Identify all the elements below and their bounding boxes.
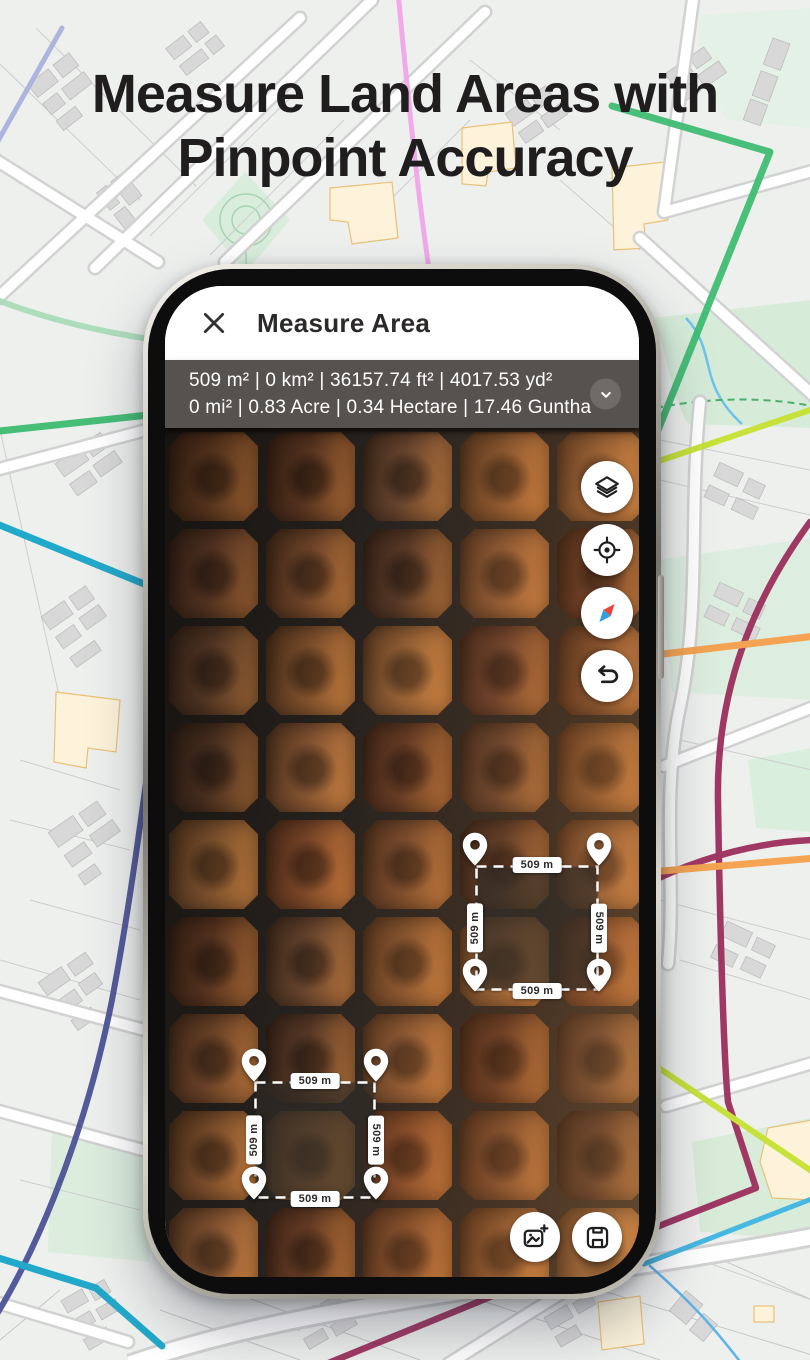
area-pin[interactable] [241, 1166, 267, 1200]
measurement-line-2: 0 mi² | 0.83 Acre | 0.34 Hectare | 17.46… [189, 394, 639, 421]
side-length-label: 509 m [368, 1116, 384, 1165]
city-block [169, 529, 258, 618]
area-pin[interactable] [241, 1048, 267, 1082]
chevron-down-icon [597, 385, 615, 403]
city-block [363, 626, 452, 715]
hero-title-line1: Measure Land Areas with [0, 62, 810, 126]
close-icon [201, 310, 227, 336]
layers-button[interactable] [581, 461, 633, 513]
city-block [460, 1111, 549, 1200]
city-block [169, 917, 258, 1006]
my-location-button[interactable] [581, 524, 633, 576]
measured-area-1: 509 m 509 m 509 m 509 m [475, 865, 599, 991]
city-block [363, 723, 452, 812]
city-block [363, 820, 452, 909]
city-block [169, 626, 258, 715]
city-block [266, 917, 355, 1006]
city-block [460, 1014, 549, 1103]
phone-mockup: Measure Area 509 m² | 0 km² | 36157.74 f… [143, 264, 661, 1299]
city-block [460, 432, 549, 521]
phone-frame: Measure Area 509 m² | 0 km² | 36157.74 f… [148, 269, 656, 1294]
action-buttons [510, 1212, 622, 1262]
area-pin[interactable] [462, 832, 488, 866]
city-block [169, 432, 258, 521]
city-block [266, 1208, 355, 1277]
city-block [557, 1014, 639, 1103]
area-pin[interactable] [363, 1048, 389, 1082]
city-block [363, 1208, 452, 1277]
city-block [266, 820, 355, 909]
city-block [169, 1208, 258, 1277]
undo-button[interactable] [581, 650, 633, 702]
map-controls [581, 461, 633, 702]
close-button[interactable] [199, 308, 229, 338]
side-length-label: 509 m [513, 857, 562, 873]
side-length-label: 509 m [291, 1191, 340, 1207]
city-block [363, 529, 452, 618]
phone-screen: Measure Area 509 m² | 0 km² | 36157.74 f… [165, 286, 639, 1277]
area-pin[interactable] [363, 1166, 389, 1200]
area-pin[interactable] [586, 958, 612, 992]
hero-title-line2: Pinpoint Accuracy [0, 126, 810, 190]
add-screenshot-button[interactable] [510, 1212, 560, 1262]
area-pin[interactable] [462, 958, 488, 992]
add-screenshot-icon [522, 1224, 549, 1251]
city-block [460, 723, 549, 812]
city-block [169, 723, 258, 812]
side-length-label: 509 m [591, 904, 607, 953]
measure-boundary [475, 865, 599, 991]
expand-measurements-button[interactable] [590, 379, 621, 410]
city-block [363, 432, 452, 521]
save-button[interactable] [572, 1212, 622, 1262]
city-block [169, 820, 258, 909]
measurement-bar: 509 m² | 0 km² | 36157.74 ft² | 4017.53 … [165, 360, 639, 428]
side-length-label: 509 m [467, 904, 483, 953]
compass-icon [592, 598, 622, 628]
satellite-map[interactable]: 509 m 509 m 509 m 509 m 509 m 509 m [165, 428, 639, 1277]
city-block [557, 1111, 639, 1200]
side-length-label: 509 m [513, 983, 562, 999]
compass-button[interactable] [581, 587, 633, 639]
side-length-label: 509 m [291, 1073, 340, 1089]
layers-icon [593, 473, 621, 501]
city-block [266, 432, 355, 521]
my-location-icon [593, 536, 621, 564]
page-title: Measure Area [257, 308, 430, 339]
city-block [266, 626, 355, 715]
city-block [363, 917, 452, 1006]
measured-area-2: 509 m 509 m 509 m 509 m [254, 1081, 376, 1199]
hero-title: Measure Land Areas with Pinpoint Accurac… [0, 62, 810, 190]
app-header: Measure Area [165, 286, 639, 360]
area-pin[interactable] [586, 832, 612, 866]
phone-power-button [658, 575, 664, 679]
city-block [460, 529, 549, 618]
city-block [266, 529, 355, 618]
city-block [266, 723, 355, 812]
city-block [460, 626, 549, 715]
side-length-label: 509 m [246, 1116, 262, 1165]
city-block [557, 723, 639, 812]
measurement-line-1: 509 m² | 0 km² | 36157.74 ft² | 4017.53 … [189, 367, 639, 394]
undo-icon [593, 662, 621, 690]
save-icon [584, 1224, 611, 1251]
measure-boundary [254, 1081, 376, 1199]
